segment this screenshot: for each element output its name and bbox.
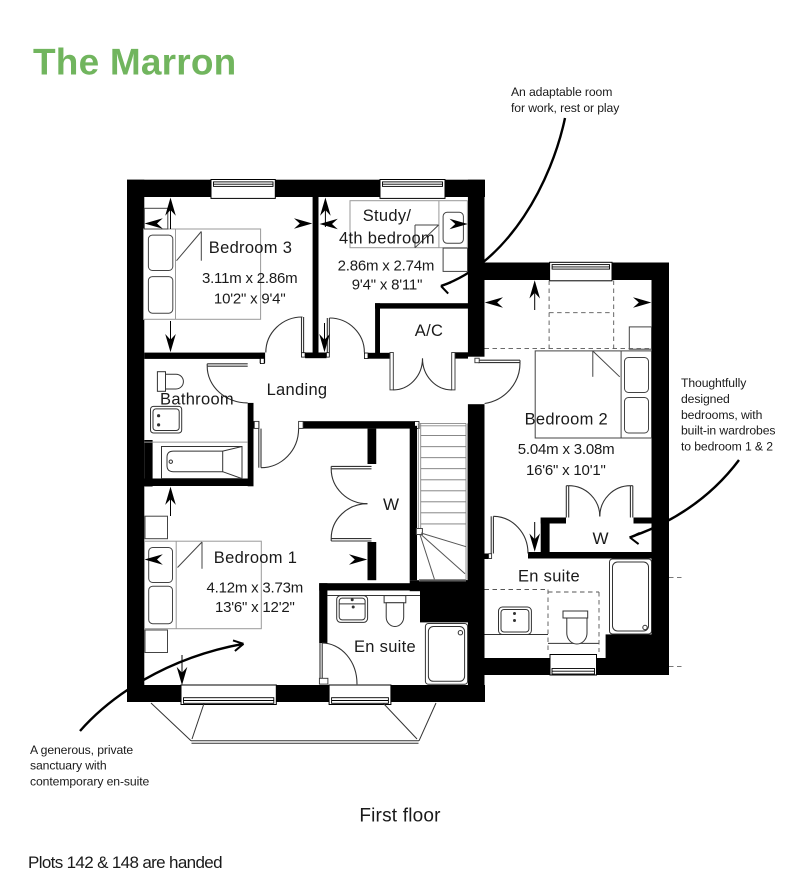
svg-text:2.86m x 2.74m: 2.86m x 2.74m xyxy=(338,258,435,275)
svg-text:4.12m x 3.73m: 4.12m x 3.73m xyxy=(206,580,303,597)
svg-text:10'2" x 9'4": 10'2" x 9'4" xyxy=(214,291,286,308)
svg-text:An adaptable room: An adaptable room xyxy=(511,85,612,99)
svg-text:for work, rest or play: for work, rest or play xyxy=(511,101,620,115)
svg-text:contemporary en-suite: contemporary en-suite xyxy=(30,774,149,788)
svg-text:designed: designed xyxy=(681,392,730,406)
svg-text:Plots 142 & 148 are handed: Plots 142 & 148 are handed xyxy=(28,853,222,872)
svg-text:Landing: Landing xyxy=(267,381,328,399)
svg-text:5.04m x 3.08m: 5.04m x 3.08m xyxy=(518,441,615,458)
svg-text:to bedroom 1 & 2: to bedroom 1 & 2 xyxy=(681,440,773,454)
svg-text:En suite: En suite xyxy=(354,638,416,656)
svg-text:3.11m x 2.86m: 3.11m x 2.86m xyxy=(202,270,298,287)
svg-text:Study/: Study/ xyxy=(363,207,412,225)
svg-text:A/C: A/C xyxy=(415,322,443,340)
svg-text:16'6" x 10'1": 16'6" x 10'1" xyxy=(526,462,606,479)
svg-text:En suite: En suite xyxy=(518,568,580,586)
svg-text:Bedroom 2: Bedroom 2 xyxy=(525,411,608,429)
svg-text:W: W xyxy=(592,529,608,548)
svg-text:bedrooms, with: bedrooms, with xyxy=(681,408,762,422)
svg-text:13'6" x 12'2": 13'6" x 12'2" xyxy=(215,599,295,616)
svg-text:Bedroom 1: Bedroom 1 xyxy=(214,549,297,567)
svg-text:W: W xyxy=(383,495,399,514)
svg-text:First floor: First floor xyxy=(359,806,441,827)
svg-text:9'4" x 8'11": 9'4" x 8'11" xyxy=(352,277,422,294)
svg-text:The Marron: The Marron xyxy=(33,42,236,83)
svg-text:4th bedroom: 4th bedroom xyxy=(339,230,435,248)
svg-text:built-in wardrobes: built-in wardrobes xyxy=(681,424,775,438)
svg-text:Thoughtfully: Thoughtfully xyxy=(681,376,747,390)
svg-text:sanctuary with: sanctuary with xyxy=(30,758,107,772)
svg-text:A generous, private: A generous, private xyxy=(30,743,133,757)
svg-text:Bathroom: Bathroom xyxy=(160,391,234,409)
svg-text:Bedroom 3: Bedroom 3 xyxy=(209,239,292,257)
